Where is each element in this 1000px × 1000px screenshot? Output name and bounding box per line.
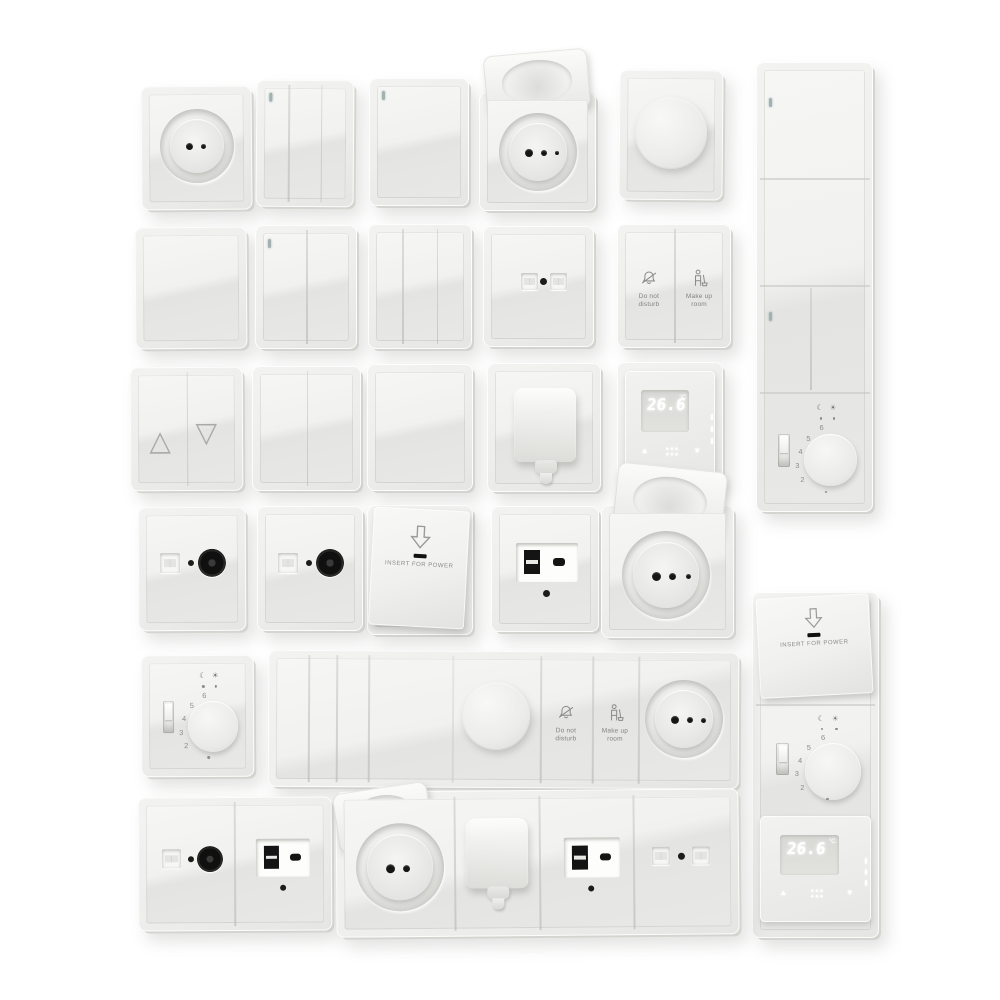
usb-c-port	[553, 558, 565, 566]
usb-charging-socket[interactable]	[491, 506, 599, 632]
side-indicator	[711, 426, 713, 432]
socket-face	[491, 234, 586, 339]
euro-socket	[499, 113, 577, 191]
cable-spout-tip	[492, 898, 504, 909]
socket-pin-hole	[701, 718, 706, 723]
single-rocker-switch[interactable]	[367, 364, 473, 491]
thermostat-dial-knob[interactable]	[805, 743, 862, 800]
card-slot	[413, 554, 426, 559]
side-indicator	[865, 858, 867, 864]
hood-top-face	[469, 818, 524, 842]
temperature-unit: °C	[679, 394, 686, 401]
coax-port	[316, 549, 344, 577]
grille-icon	[810, 888, 824, 899]
double-module-plate[interactable]	[138, 796, 333, 931]
temperature-display: 26.6 °C	[780, 835, 840, 875]
bell-crossed-icon	[555, 701, 577, 723]
insert-arrow-icon	[799, 604, 826, 631]
socket-pin-hole	[555, 151, 559, 155]
cable-outlet-hood	[466, 818, 529, 889]
bell-crossed-icon	[638, 267, 660, 289]
blind-up-icon[interactable]: △	[149, 427, 171, 455]
socket-pin-hole	[525, 149, 533, 157]
analog-thermostat[interactable]: ☾ ☀ 6 5 4 3 2	[141, 655, 255, 778]
double-rocker-switch[interactable]	[255, 225, 357, 349]
thermostat-body: 26.6 °C ▲ ▼	[760, 816, 871, 922]
rocker-face[interactable]	[143, 235, 240, 342]
socket-well	[655, 690, 713, 748]
socket-pin-hole	[686, 574, 691, 579]
dial-number: 6	[202, 691, 206, 700]
led-indicator	[769, 98, 772, 107]
dial-number: 2	[800, 783, 804, 792]
grille-icon	[665, 446, 679, 457]
rocker-face[interactable]	[264, 88, 347, 200]
thermostat-dial[interactable]: ☾ ☀ 6 5 4 3 2	[764, 394, 865, 504]
socket-pin-hole	[669, 573, 676, 580]
socket-pin-hole	[671, 716, 679, 724]
socket-well	[509, 123, 567, 181]
moon-icon: ☾	[199, 671, 206, 680]
antenna-square-port	[162, 849, 181, 868]
keycard-power-switch[interactable]: INSERT FOR POWER	[367, 505, 473, 635]
dial-number: 3	[795, 461, 799, 470]
cable-spout	[535, 460, 557, 474]
side-indicator	[711, 414, 713, 420]
led-indicator	[382, 91, 385, 100]
do-not-disturb-button[interactable]: Do notdisturb	[624, 251, 674, 325]
center-hole	[188, 560, 194, 566]
thermostat-dial[interactable]: ☾ ☀ 6 5 4 3 2	[761, 706, 870, 810]
temp-up-button[interactable]: ▲	[641, 446, 648, 455]
center-hole	[540, 278, 547, 285]
insert-arrow-icon	[405, 522, 437, 554]
do-not-disturb-label: Do notdisturb	[555, 727, 576, 744]
housekeeping-icon	[688, 267, 710, 289]
center-hole	[280, 885, 286, 891]
keycard-slot-cover[interactable]: INSERT FOR POWER	[755, 593, 873, 699]
euro-socket	[645, 680, 723, 758]
make-up-room-button[interactable]: Make uproom	[674, 251, 724, 325]
socket-pin-hole	[541, 150, 547, 156]
usb-a-port	[572, 846, 588, 870]
coax-port	[197, 846, 223, 872]
data-port	[652, 847, 670, 865]
dial-number: 5	[807, 743, 811, 752]
euro-socket	[622, 531, 710, 619]
socket-well	[367, 834, 433, 900]
center-hole	[678, 853, 685, 860]
double-rocker-switch[interactable]	[252, 366, 361, 491]
temperature-unit: °C	[829, 838, 836, 845]
led-indicator	[769, 312, 772, 321]
dial-number: 6	[820, 423, 824, 432]
socket-pin-hole	[386, 864, 395, 873]
switch-socket-collection-render: ☾ ☀ 6 5 4 3 2	[0, 0, 1000, 1000]
blind-down-icon[interactable]: ▽	[195, 419, 217, 447]
socket-pin-hole	[652, 572, 661, 581]
led-indicator	[268, 239, 271, 248]
rocker-divider	[810, 288, 812, 390]
usb-a-port	[524, 550, 540, 574]
single-rocker-switch[interactable]	[135, 227, 248, 350]
thermostat-dial[interactable]: ☾ ☀ 6 5 4 3 2	[149, 663, 247, 770]
sun-icon: ☀	[830, 403, 837, 412]
antenna-square-port	[160, 553, 180, 573]
dial-number: 4	[798, 756, 802, 765]
thermostat-switch-slot[interactable]	[776, 743, 789, 774]
do-not-disturb-label: Do notdisturb	[638, 293, 659, 310]
module-seam	[760, 285, 870, 287]
make-up-room-label: Make uproom	[686, 293, 712, 310]
socket-pin-hole	[201, 144, 206, 149]
moon-icon: ☾	[817, 403, 824, 412]
socket-well	[169, 118, 224, 173]
module-seam	[760, 178, 870, 180]
usb-c-port	[290, 854, 301, 861]
rocker-face[interactable]	[375, 372, 465, 483]
thermostat-switch-slot[interactable]	[163, 701, 175, 733]
temp-down-button[interactable]: ▼	[693, 446, 700, 455]
dial-number: 6	[821, 733, 825, 742]
side-indicator	[865, 880, 867, 886]
euro-socket	[160, 109, 235, 184]
coax-port	[198, 549, 226, 577]
side-indicator	[865, 869, 867, 875]
tv-antenna-socket[interactable]	[138, 507, 247, 632]
thermostat-dial-knob[interactable]	[188, 701, 239, 752]
euro-socket-with-lid[interactable]	[601, 505, 734, 638]
cable-spout-tip	[540, 473, 552, 484]
socket-pin-hole	[186, 143, 193, 150]
euro-socket-plate[interactable]	[140, 86, 252, 211]
rocker-divider	[402, 229, 404, 344]
usb-a-port	[264, 846, 279, 869]
usb-c-port	[600, 853, 611, 860]
card-slot	[807, 633, 820, 638]
vertical-multi-panel[interactable]: INSERT FOR POWER ☾ ☀ 6 5 4 3 2 26.6 °C ▲	[752, 592, 879, 938]
temp-down-button[interactable]: ▼	[846, 888, 853, 897]
horizontal-multi-panel[interactable]	[335, 788, 739, 938]
rocker-face[interactable]	[376, 232, 464, 341]
hood-top-face	[518, 388, 573, 413]
antenna-square-port	[278, 553, 298, 573]
euro-socket-with-lid[interactable]	[479, 92, 596, 211]
cable-outlet[interactable]	[487, 363, 601, 492]
center-hole	[306, 560, 312, 566]
socket-well	[633, 542, 698, 607]
thermostat-switch-slot[interactable]	[778, 434, 790, 467]
data-port	[521, 273, 538, 290]
moon-icon: ☾	[818, 714, 825, 723]
housekeeping-icon	[604, 701, 626, 723]
blinds-switch[interactable]: △ ▽	[130, 367, 244, 492]
triple-rocker-switch[interactable]	[368, 224, 472, 349]
data-port	[550, 273, 567, 290]
rocker-face[interactable]	[377, 86, 461, 198]
single-rocker-switch[interactable]	[369, 78, 469, 206]
socket-pin-hole	[403, 865, 410, 872]
rocker-divider	[307, 371, 309, 486]
do-not-disturb-button[interactable]: Do notdisturb	[544, 684, 588, 761]
sun-icon: ☀	[212, 671, 219, 680]
temperature-display: 26.6 °C	[641, 390, 690, 432]
center-hole	[188, 856, 194, 862]
sun-icon: ☀	[832, 714, 839, 723]
triple-rocker-switch[interactable]	[256, 80, 355, 208]
dial-number: 4	[182, 714, 186, 723]
center-hole	[588, 886, 594, 892]
service-button-switch[interactable]: Do notdisturb Make uproom	[617, 224, 731, 348]
make-up-room-label: Make uproom	[602, 727, 628, 744]
temp-up-button[interactable]: ▲	[780, 888, 787, 897]
dimmer-knob[interactable]	[635, 97, 708, 170]
dial-number: 3	[179, 728, 183, 737]
dial-number: 2	[800, 475, 804, 484]
rotary-dimmer[interactable]	[618, 70, 723, 201]
make-up-room-button[interactable]: Make uproom	[594, 684, 636, 761]
data-socket[interactable]	[483, 226, 594, 347]
dimmer-knob[interactable]	[462, 682, 530, 750]
led-indicator	[269, 93, 272, 102]
digital-thermostat: 26.6 °C ▲ ▼	[630, 377, 711, 476]
rocker-divider	[306, 230, 308, 344]
rocker-divider	[437, 229, 439, 344]
side-indicator	[711, 438, 713, 444]
dial-number: 2	[184, 741, 188, 750]
cable-outlet-hood	[514, 388, 576, 462]
thermostat-dial-knob[interactable]	[804, 434, 857, 487]
data-port	[692, 846, 710, 864]
digital-thermostat: 26.6 °C ▲ ▼	[766, 821, 866, 916]
dial-number: 5	[806, 434, 810, 443]
euro-socket	[356, 823, 445, 912]
center-hole	[543, 590, 550, 597]
tv-antenna-socket[interactable]	[257, 506, 363, 631]
insert-for-power-label: INSERT FOR POWER	[780, 639, 849, 649]
keycard-slot-cover[interactable]: INSERT FOR POWER	[368, 507, 470, 630]
insert-for-power-label: INSERT FOR POWER	[385, 561, 454, 571]
dial-number: 4	[798, 447, 802, 456]
temperature-value: 26.6	[786, 839, 827, 858]
dial-number: 3	[795, 769, 799, 778]
horizontal-multi-panel[interactable]: Do notdisturb Make uproom	[268, 650, 740, 789]
socket-pin-hole	[687, 717, 693, 723]
vertical-multi-panel[interactable]: ☾ ☀ 6 5 4 3 2	[756, 62, 873, 512]
